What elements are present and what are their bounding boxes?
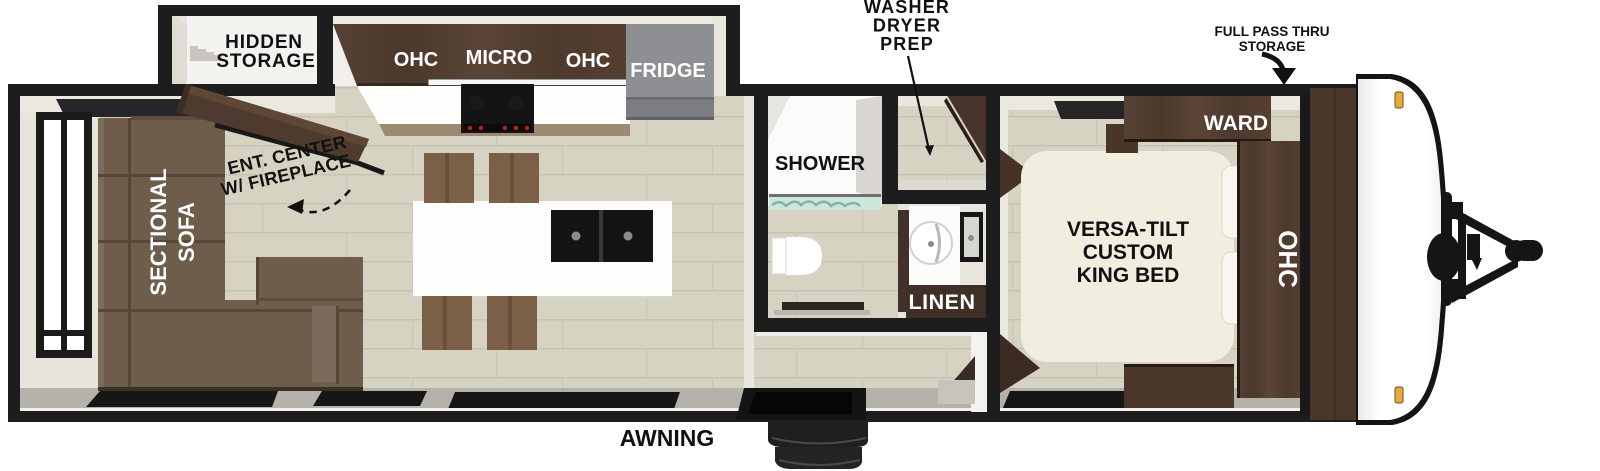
svg-text:OHC: OHC — [566, 50, 610, 72]
svg-text:WASHER: WASHER — [864, 0, 950, 17]
svg-text:SHOWER: SHOWER — [775, 153, 866, 175]
svg-text:DRYER: DRYER — [873, 16, 941, 36]
svg-text:MICRO: MICRO — [466, 47, 533, 69]
svg-text:HIDDEN: HIDDEN — [225, 32, 303, 53]
svg-text:FRIDGE: FRIDGE — [630, 60, 706, 82]
svg-text:AWNING: AWNING — [620, 425, 715, 451]
svg-text:LINEN: LINEN — [909, 290, 976, 314]
svg-text:STORAGE: STORAGE — [1239, 39, 1306, 54]
svg-text:CUSTOM: CUSTOM — [1083, 241, 1174, 264]
svg-text:KING BED: KING BED — [1077, 264, 1180, 287]
svg-text:SOFA: SOFA — [174, 202, 199, 262]
svg-text:OHC: OHC — [394, 49, 438, 71]
svg-text:VERSA-TILT: VERSA-TILT — [1067, 218, 1189, 241]
svg-text:FULL PASS THRU: FULL PASS THRU — [1214, 24, 1329, 39]
svg-text:PREP: PREP — [880, 34, 934, 54]
svg-text:SECTIONAL: SECTIONAL — [146, 168, 171, 295]
svg-text:WARD: WARD — [1204, 112, 1268, 135]
svg-text:STORAGE: STORAGE — [216, 51, 315, 72]
svg-text:OHC: OHC — [1273, 230, 1303, 288]
